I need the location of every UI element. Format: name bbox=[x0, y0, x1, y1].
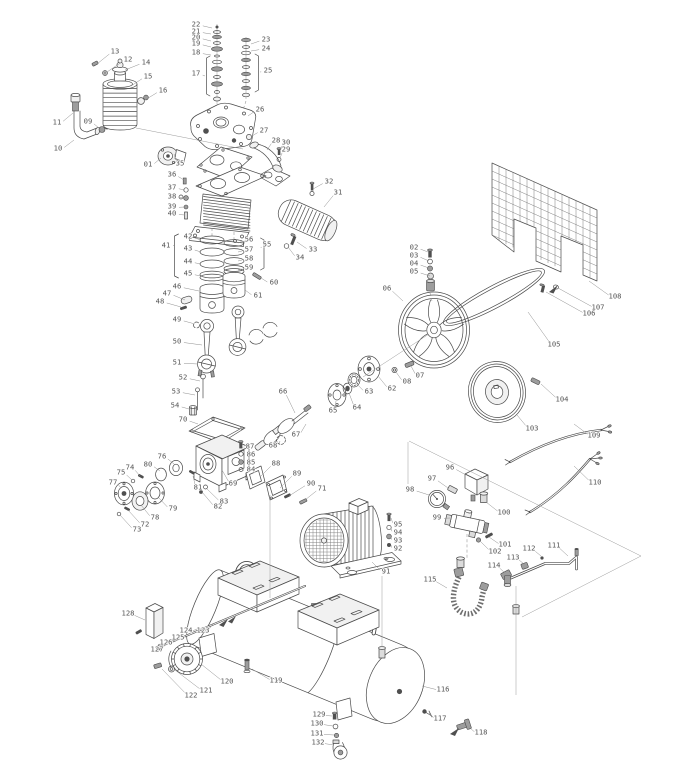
part-label-62: 62 bbox=[388, 383, 397, 392]
part-label-94: 94 bbox=[394, 527, 403, 536]
leader-63 bbox=[357, 384, 363, 390]
leader-04 bbox=[421, 265, 429, 268]
v-belt-drawing bbox=[439, 261, 550, 334]
part-label-103: 103 bbox=[526, 423, 539, 432]
leader-108 bbox=[589, 281, 609, 295]
leader-128 bbox=[134, 615, 145, 620]
part-label-40: 40 bbox=[168, 208, 177, 217]
part-label-128: 128 bbox=[122, 608, 135, 617]
part-label-81: 81 bbox=[194, 482, 203, 491]
part-label-28: 28 bbox=[272, 135, 281, 144]
crankshaft-drawing bbox=[254, 404, 311, 451]
leader-14 bbox=[125, 64, 139, 70]
leader-58 bbox=[238, 260, 242, 261]
connecting-rods-drawing bbox=[198, 306, 278, 377]
part-label-83: 83 bbox=[220, 496, 229, 505]
leader-71 bbox=[305, 491, 316, 500]
leader-112 bbox=[535, 551, 541, 556]
leader-18 bbox=[203, 54, 211, 55]
pressure-switch-assembly-drawing bbox=[428, 469, 493, 542]
diagram-canvas: 0102030405060708091011121314151617181920… bbox=[0, 0, 686, 768]
part-label-43: 43 bbox=[184, 243, 193, 252]
air-filter-drawing bbox=[92, 59, 149, 130]
leader-113 bbox=[519, 560, 524, 564]
leader-132 bbox=[325, 744, 334, 745]
part-label-130: 130 bbox=[311, 718, 324, 727]
part-label-129: 129 bbox=[313, 709, 326, 718]
part-label-72: 72 bbox=[141, 519, 150, 528]
part-label-70: 70 bbox=[179, 414, 188, 423]
leader-105 bbox=[528, 312, 550, 342]
part-label-71: 71 bbox=[318, 483, 327, 492]
leader-49 bbox=[184, 321, 195, 324]
cooling-fin-panel-drawing bbox=[492, 162, 597, 294]
leader-13 bbox=[97, 54, 109, 64]
leader-22 bbox=[203, 26, 212, 28]
silencer-box-drawing bbox=[135, 604, 163, 639]
leader-130 bbox=[324, 725, 333, 726]
part-label-116: 116 bbox=[437, 684, 450, 693]
part-label-36: 36 bbox=[168, 169, 177, 178]
leader-95 bbox=[391, 518, 393, 523]
part-label-132: 132 bbox=[312, 737, 325, 746]
leader-131 bbox=[324, 734, 334, 735]
part-label-78: 78 bbox=[151, 512, 160, 521]
leader-107 bbox=[558, 288, 592, 306]
motor-pulley-drawing bbox=[464, 357, 541, 427]
part-label-76: 76 bbox=[158, 451, 167, 460]
part-label-92: 92 bbox=[394, 543, 403, 552]
leader-96 bbox=[456, 470, 466, 475]
leader-08 bbox=[396, 372, 402, 380]
drain-valve-drawing bbox=[422, 709, 471, 736]
leader-74 bbox=[135, 470, 140, 476]
leader-41 bbox=[173, 245, 174, 246]
part-label-111: 111 bbox=[548, 540, 561, 549]
leader-19 bbox=[203, 45, 211, 47]
leader-72 bbox=[128, 510, 140, 523]
part-label-17: 17 bbox=[192, 68, 201, 77]
part-label-35: 35 bbox=[176, 158, 185, 167]
part-label-119: 119 bbox=[270, 675, 283, 684]
leader-75 bbox=[127, 475, 132, 480]
leader-51 bbox=[184, 363, 198, 364]
part-label-89: 89 bbox=[293, 468, 302, 477]
intake-muffler-drawing bbox=[274, 182, 340, 248]
part-label-100: 100 bbox=[498, 507, 511, 516]
part-label-52: 52 bbox=[179, 372, 188, 381]
part-label-110: 110 bbox=[589, 477, 602, 486]
part-label-125: 125 bbox=[172, 632, 185, 641]
part-label-50: 50 bbox=[173, 336, 182, 345]
part-label-87: 87 bbox=[246, 441, 255, 450]
leader-50 bbox=[184, 343, 202, 345]
part-label-97: 97 bbox=[428, 473, 437, 482]
valve-stack-drawing bbox=[207, 24, 259, 114]
part-label-122: 122 bbox=[185, 690, 198, 699]
part-label-09: 09 bbox=[84, 116, 93, 125]
part-label-45: 45 bbox=[184, 268, 193, 277]
part-label-90: 90 bbox=[307, 478, 316, 487]
bold-arrow-icon bbox=[450, 728, 459, 736]
part-label-114: 114 bbox=[488, 560, 501, 569]
leader-17 bbox=[203, 75, 205, 76]
leader-53 bbox=[183, 393, 195, 395]
part-label-88: 88 bbox=[272, 458, 281, 467]
part-label-98: 98 bbox=[406, 484, 415, 493]
leader-97 bbox=[438, 481, 448, 488]
leader-66 bbox=[286, 395, 295, 413]
leader-24 bbox=[251, 50, 259, 51]
part-label-18: 18 bbox=[192, 47, 201, 56]
part-label-131: 131 bbox=[311, 728, 324, 737]
part-label-96: 96 bbox=[446, 462, 455, 471]
leader-100 bbox=[486, 502, 498, 511]
part-label-56: 56 bbox=[245, 234, 254, 243]
part-label-42: 42 bbox=[184, 231, 193, 240]
part-label-27: 27 bbox=[260, 125, 269, 134]
leader-48 bbox=[167, 303, 181, 307]
part-label-34: 34 bbox=[296, 252, 305, 261]
leader-03 bbox=[420, 257, 429, 261]
part-label-54: 54 bbox=[171, 400, 180, 409]
part-label-06: 06 bbox=[383, 283, 392, 292]
part-label-12: 12 bbox=[124, 54, 133, 63]
part-label-23: 23 bbox=[262, 34, 271, 43]
part-label-115: 115 bbox=[424, 574, 437, 583]
part-label-53: 53 bbox=[172, 386, 181, 395]
part-label-85: 85 bbox=[247, 457, 256, 466]
leader-02 bbox=[421, 249, 428, 252]
leader-73 bbox=[120, 515, 132, 528]
part-label-37: 37 bbox=[168, 182, 177, 191]
bracket-41 bbox=[175, 234, 179, 278]
part-label-107: 107 bbox=[592, 302, 605, 311]
part-label-51: 51 bbox=[173, 357, 182, 366]
part-label-15: 15 bbox=[144, 71, 153, 80]
part-label-123: 123 bbox=[197, 625, 210, 634]
leader-10 bbox=[64, 140, 74, 147]
leader-90 bbox=[289, 486, 305, 496]
part-label-38: 38 bbox=[168, 191, 177, 200]
part-label-127: 127 bbox=[151, 644, 164, 653]
leader-68 bbox=[279, 441, 280, 444]
part-label-07: 07 bbox=[416, 370, 425, 379]
leader-32 bbox=[313, 184, 323, 189]
part-label-113: 113 bbox=[507, 552, 520, 561]
part-label-01: 01 bbox=[144, 159, 153, 168]
part-label-86: 86 bbox=[247, 449, 256, 458]
part-label-77: 77 bbox=[109, 477, 118, 486]
leader-70 bbox=[190, 421, 198, 424]
part-label-102: 102 bbox=[489, 546, 502, 555]
leader-07 bbox=[411, 366, 415, 374]
part-label-14: 14 bbox=[142, 57, 151, 66]
part-label-25: 25 bbox=[264, 65, 273, 74]
part-label-44: 44 bbox=[184, 256, 193, 265]
leader-82 bbox=[202, 492, 213, 505]
part-label-16: 16 bbox=[159, 85, 168, 94]
leader-60 bbox=[261, 278, 267, 282]
part-label-66: 66 bbox=[279, 386, 288, 395]
leader-46 bbox=[184, 288, 199, 291]
part-label-109: 109 bbox=[588, 430, 601, 439]
part-label-05: 05 bbox=[410, 266, 419, 275]
leader-20 bbox=[203, 39, 211, 41]
part-label-60: 60 bbox=[270, 277, 279, 286]
part-label-120: 120 bbox=[221, 676, 234, 685]
part-label-55: 55 bbox=[263, 239, 272, 248]
part-label-74: 74 bbox=[126, 462, 135, 471]
part-label-65: 65 bbox=[329, 405, 338, 414]
part-label-117: 117 bbox=[434, 713, 447, 722]
leader-62 bbox=[378, 376, 387, 387]
leader-34 bbox=[288, 247, 295, 256]
leader-104 bbox=[541, 384, 556, 398]
leader-21 bbox=[203, 33, 211, 34]
part-label-10: 10 bbox=[54, 143, 63, 152]
compressor-exploded-diagram: 0102030405060708091011121314151617181920… bbox=[0, 0, 686, 768]
part-label-99: 99 bbox=[433, 512, 442, 521]
leader-57 bbox=[238, 251, 242, 252]
part-label-24: 24 bbox=[262, 43, 271, 52]
leader-11 bbox=[63, 113, 73, 121]
part-label-118: 118 bbox=[475, 727, 488, 736]
bracket-25 bbox=[255, 54, 259, 92]
part-label-26: 26 bbox=[256, 104, 265, 113]
part-label-46: 46 bbox=[173, 281, 182, 290]
part-label-73: 73 bbox=[133, 524, 142, 533]
leader-31 bbox=[324, 196, 333, 207]
leader-116 bbox=[422, 686, 436, 690]
part-label-57: 57 bbox=[245, 244, 254, 253]
part-label-112: 112 bbox=[523, 543, 536, 552]
part-label-95: 95 bbox=[394, 519, 403, 528]
part-label-69: 69 bbox=[229, 478, 238, 487]
part-label-11: 11 bbox=[53, 117, 62, 126]
leader-94 bbox=[391, 528, 392, 531]
part-label-63: 63 bbox=[365, 386, 374, 395]
part-label-22: 22 bbox=[192, 19, 201, 28]
part-label-48: 48 bbox=[156, 296, 165, 305]
part-label-58: 58 bbox=[245, 253, 254, 262]
leader-54 bbox=[182, 407, 189, 409]
part-label-104: 104 bbox=[556, 394, 569, 403]
part-label-121: 121 bbox=[200, 685, 213, 694]
part-label-79: 79 bbox=[169, 503, 178, 512]
part-label-31: 31 bbox=[334, 187, 343, 196]
leader-09 bbox=[94, 124, 99, 128]
part-label-68: 68 bbox=[269, 440, 278, 449]
leader-92 bbox=[391, 545, 392, 548]
leader-52 bbox=[190, 379, 200, 381]
part-label-64: 64 bbox=[353, 402, 362, 411]
leader-23 bbox=[251, 41, 259, 44]
leader-111 bbox=[560, 548, 568, 556]
part-label-13: 13 bbox=[111, 46, 120, 55]
leader-101 bbox=[489, 537, 499, 544]
part-label-80: 80 bbox=[144, 459, 153, 468]
part-label-41: 41 bbox=[162, 240, 171, 249]
bracket-17 bbox=[207, 56, 211, 96]
part-label-61: 61 bbox=[254, 290, 263, 299]
leader-98 bbox=[417, 491, 429, 495]
part-label-93: 93 bbox=[394, 535, 403, 544]
leader-33 bbox=[297, 242, 307, 249]
leader-06 bbox=[392, 291, 403, 301]
part-label-32: 32 bbox=[325, 176, 334, 185]
leader-67 bbox=[301, 424, 306, 433]
leader-120 bbox=[201, 664, 221, 680]
bearing-flange-drawing bbox=[328, 356, 414, 407]
part-label-105: 105 bbox=[548, 339, 561, 348]
leader-61 bbox=[245, 290, 251, 295]
part-label-30: 30 bbox=[282, 137, 291, 146]
part-label-08: 08 bbox=[403, 376, 412, 385]
part-label-59: 59 bbox=[245, 262, 254, 271]
leader-106 bbox=[546, 292, 583, 312]
leader-115 bbox=[436, 582, 447, 588]
part-label-91: 91 bbox=[382, 566, 391, 575]
part-label-49: 49 bbox=[173, 314, 182, 323]
part-label-108: 108 bbox=[609, 291, 622, 300]
part-label-75: 75 bbox=[117, 467, 126, 476]
flex-hose-drawing bbox=[453, 567, 488, 614]
cylinder-head-drawing bbox=[191, 103, 256, 150]
leader-83 bbox=[206, 488, 218, 500]
part-label-33: 33 bbox=[309, 244, 318, 253]
part-label-67: 67 bbox=[292, 429, 301, 438]
